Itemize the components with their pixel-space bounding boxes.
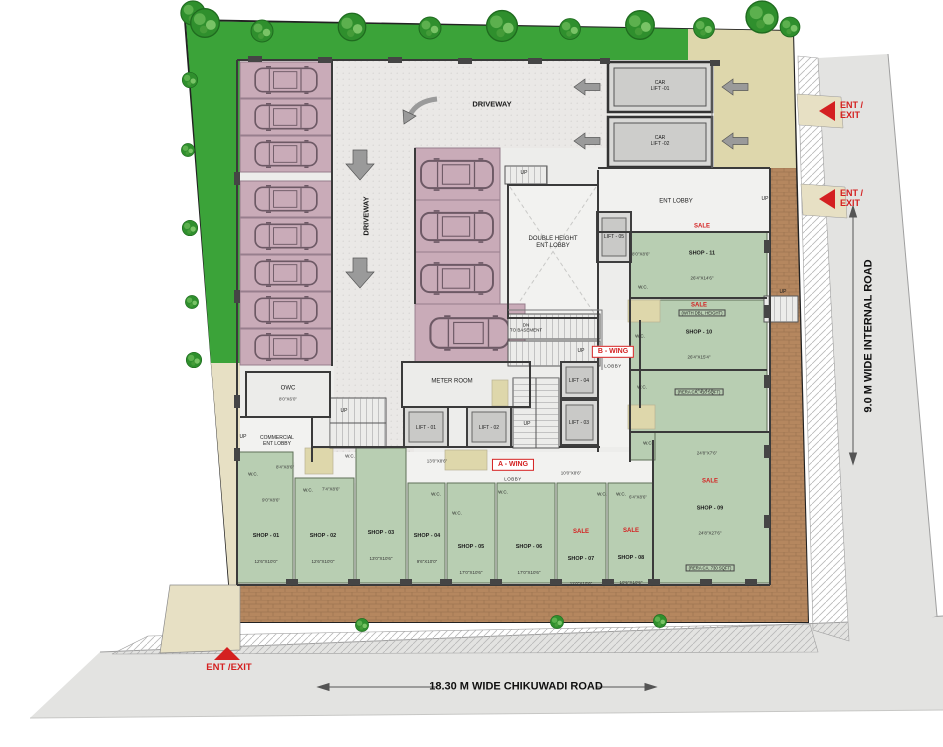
floor-plan-page: DRIVEWAY DRIVEWAY CAR LIFT -01 CAR LIFT … bbox=[0, 0, 943, 747]
shop-08-label: SALE SHOP - 08 10'6"X10'6" bbox=[618, 509, 645, 605]
shop-name: SHOP - 05 bbox=[458, 544, 485, 551]
shop-name: SHOP - 10 bbox=[675, 329, 724, 336]
up-label: UP bbox=[780, 289, 787, 295]
up-label: UP bbox=[762, 196, 769, 202]
shop-dim: 12'6"X10'0" bbox=[253, 559, 280, 564]
room-dim: 9'0"X8'6" bbox=[262, 497, 280, 502]
sale-tag: SALE bbox=[679, 224, 726, 231]
owc-label: OWC bbox=[281, 385, 296, 392]
shop-dim: 24'8"X27'6" bbox=[686, 531, 735, 536]
ent-exit-right-1: ENT / EXIT bbox=[840, 101, 863, 121]
up-label: UP bbox=[521, 170, 528, 176]
lift-4-label: LIFT - 04 bbox=[569, 378, 589, 384]
sale-tag: SALE bbox=[568, 529, 595, 536]
wc-label: W.C. bbox=[303, 487, 313, 492]
shop-dim: 9'6"X10'0" bbox=[414, 559, 441, 564]
shop-dim: 10'6"X10'6" bbox=[618, 580, 645, 585]
car-lift-2-label: CAR LIFT -02 bbox=[651, 135, 670, 147]
wc-label: W.C. bbox=[498, 489, 508, 494]
right-road-label: 9.0 M WIDE INTERNAL ROAD bbox=[862, 259, 875, 412]
shop-dim: 12'6"X10'0" bbox=[310, 559, 337, 564]
wc-label: W.C. bbox=[638, 284, 648, 289]
shop-dim: 26'4"X15'4" bbox=[675, 355, 724, 360]
dn-to-basement-label: DN TO BASEMENT bbox=[510, 323, 542, 334]
wc-label: W.C. bbox=[637, 384, 647, 389]
room-dim: 13'0"X8'6" bbox=[427, 458, 447, 463]
bottom-road-label: 18.30 M WIDE CHIKUWADI ROAD bbox=[429, 680, 603, 693]
room-dim: 8'0"X8'6" bbox=[632, 251, 650, 256]
shop-note: (RERA CA. 410 SQFT) bbox=[675, 388, 724, 395]
lift-2-label: LIFT - 02 bbox=[479, 425, 499, 431]
paving-bottom bbox=[240, 585, 770, 622]
shop-name: SHOP - 04 bbox=[414, 533, 441, 540]
shop-name: SHOP - 07 bbox=[568, 556, 595, 563]
b-wing-label: B - WING bbox=[592, 346, 634, 358]
a-wing-lobby-label: LOBBY bbox=[504, 476, 522, 481]
shop-note: (WITH DBL. HEIGHT) bbox=[679, 309, 726, 316]
up-label: UP bbox=[341, 408, 348, 414]
wc-label: W.C. bbox=[616, 491, 626, 496]
car-lift-1-label: CAR LIFT -01 bbox=[651, 80, 670, 92]
shop-09-label: SALE SHOP - 09 24'8"X27'6" (RERA CA. 730… bbox=[686, 459, 735, 574]
wc-label: W.C. bbox=[452, 510, 462, 515]
shop-note: (RERA CA. 730 SQFT) bbox=[686, 564, 735, 571]
sale-tag: SALE bbox=[618, 528, 645, 535]
up-label: UP bbox=[524, 421, 531, 427]
up-label: UP bbox=[578, 348, 585, 354]
lift-1-label: LIFT - 01 bbox=[416, 425, 436, 431]
entry-path-bottom-left bbox=[160, 585, 240, 653]
shop-03-label: SHOP - 03 13'0"X10'6" bbox=[368, 511, 395, 581]
driveway-label-left: DRIVEWAY bbox=[362, 196, 371, 235]
shop-name: SHOP - 02 bbox=[310, 533, 337, 540]
shop-dim: 26'4"X14'6" bbox=[679, 276, 726, 281]
commercial-lobby-label: COMMERCIAL ENT LOBBY bbox=[260, 435, 294, 447]
shop-dim: 13'0"X10'6" bbox=[368, 556, 395, 561]
room-dim: 24'8"X7'6" bbox=[697, 450, 717, 455]
a-wing-label: A - WING bbox=[492, 459, 534, 471]
shop-dim: 11'0"X10'6" bbox=[568, 581, 595, 586]
floor-plan-drawing bbox=[0, 0, 943, 747]
shop-01-label: SHOP - 01 12'6"X10'0" bbox=[253, 514, 280, 584]
shop-dim: 17'0"X10'6" bbox=[458, 570, 485, 575]
up-label: UP bbox=[240, 434, 247, 440]
sale-tag: SALE bbox=[686, 479, 735, 486]
shop-11-label: SALE SHOP - 11 26'4"X14'6" (WITH DBL. HE… bbox=[679, 204, 726, 319]
ent-exit-right-2: ENT / EXIT bbox=[840, 189, 863, 209]
wc-label: W.C. bbox=[431, 491, 441, 496]
shop-name: SHOP - 09 bbox=[686, 505, 735, 512]
shop-dim: 17'0"X10'6" bbox=[516, 570, 543, 575]
room-dim: 10'0"X8'6" bbox=[561, 470, 581, 475]
shop-04-label: SHOP - 04 9'6"X10'0" bbox=[414, 514, 441, 584]
meter-room-label: METER ROOM bbox=[431, 378, 472, 385]
double-height-lobby-label: DOUBLE HEIGHT ENT LOBBY bbox=[528, 236, 577, 250]
wc-label: W.C. bbox=[248, 471, 258, 476]
owc-dim: 8'0"X6'0" bbox=[279, 396, 297, 401]
b-wing-lobby-label: LOBBY bbox=[604, 363, 622, 368]
room-dim: 8'4"X8'6" bbox=[276, 464, 294, 469]
driveway-label-top: DRIVEWAY bbox=[472, 100, 511, 109]
shop-06-label: SHOP - 06 17'0"X10'6" bbox=[516, 525, 543, 595]
room-dim: 6'4"X8'6" bbox=[629, 494, 647, 499]
shop-name: SHOP - 08 bbox=[618, 555, 645, 562]
room-dim: 7'4"X8'6" bbox=[322, 486, 340, 491]
shop-name: SHOP - 06 bbox=[516, 544, 543, 551]
wc-label: W.C. bbox=[635, 333, 645, 338]
shop-name: SHOP - 11 bbox=[679, 250, 726, 257]
shop-name: SHOP - 01 bbox=[253, 533, 280, 540]
wc-label: W.C. bbox=[643, 440, 653, 445]
shop-07-label: SALE SHOP - 07 11'0"X10'6" bbox=[568, 510, 595, 606]
shop-02-label: SHOP - 02 12'6"X10'0" bbox=[310, 514, 337, 584]
shop-05-label: SHOP - 05 17'0"X10'6" bbox=[458, 525, 485, 595]
wc-label: W.C. bbox=[597, 491, 607, 496]
ent-exit-bottom: ENT /EXIT bbox=[206, 662, 251, 673]
lift-5-label: LIFT - 05 bbox=[604, 234, 624, 240]
shop-name: SHOP - 03 bbox=[368, 530, 395, 537]
wc-label: W.C. bbox=[345, 453, 355, 458]
lift-3-label: LIFT - 03 bbox=[569, 420, 589, 426]
